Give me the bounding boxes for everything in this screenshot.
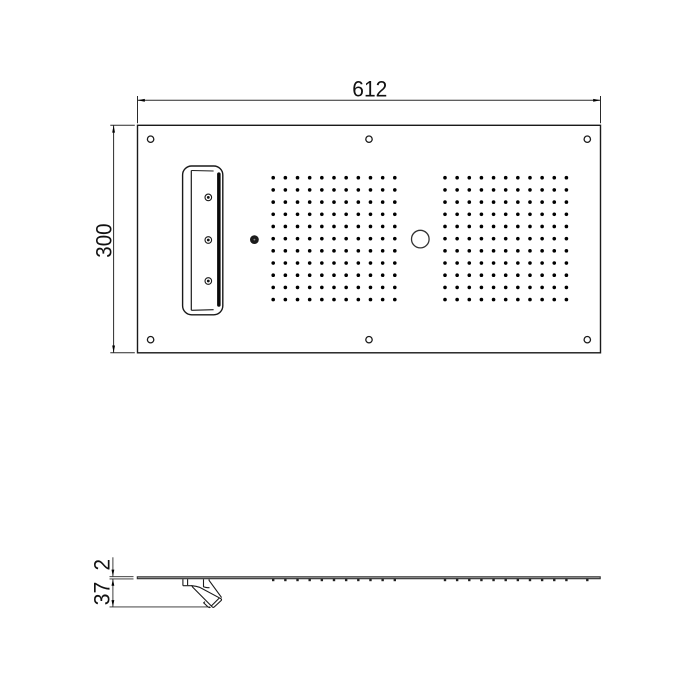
svg-text:2: 2 [90,559,115,571]
svg-text:300: 300 [91,223,116,257]
svg-text:612: 612 [352,77,387,102]
svg-text:37: 37 [90,582,115,606]
